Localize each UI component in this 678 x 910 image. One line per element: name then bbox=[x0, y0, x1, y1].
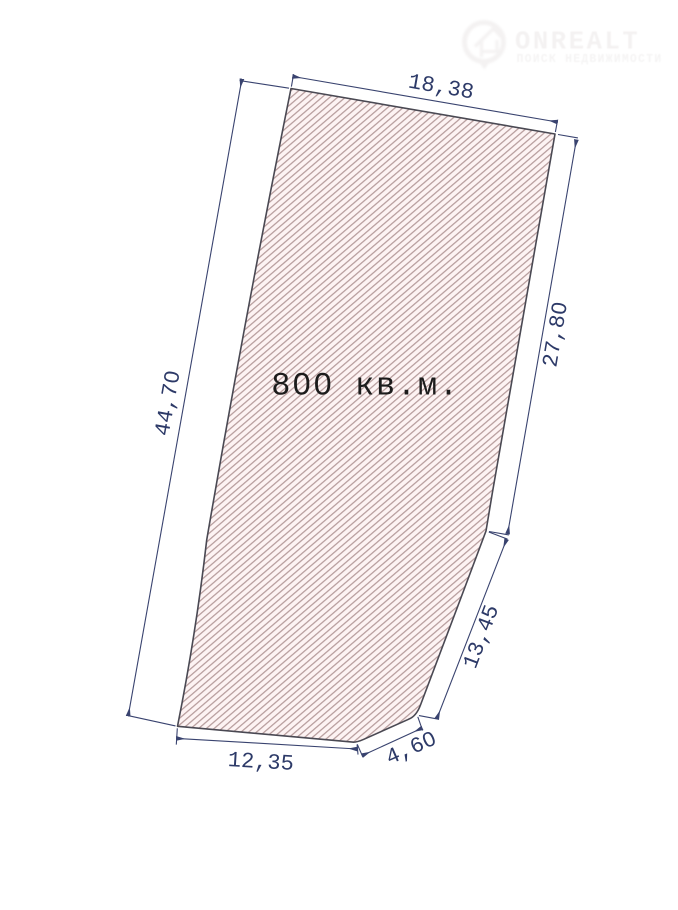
svg-text:13,45: 13,45 bbox=[459, 602, 506, 673]
svg-text:ПОИСК НЕДВИЖИМОСТИ: ПОИСК НЕДВИЖИМОСТИ bbox=[517, 53, 663, 66]
svg-text:18,38: 18,38 bbox=[406, 70, 475, 106]
svg-text:44,70: 44,70 bbox=[151, 369, 187, 438]
svg-text:12,35: 12,35 bbox=[227, 748, 294, 777]
